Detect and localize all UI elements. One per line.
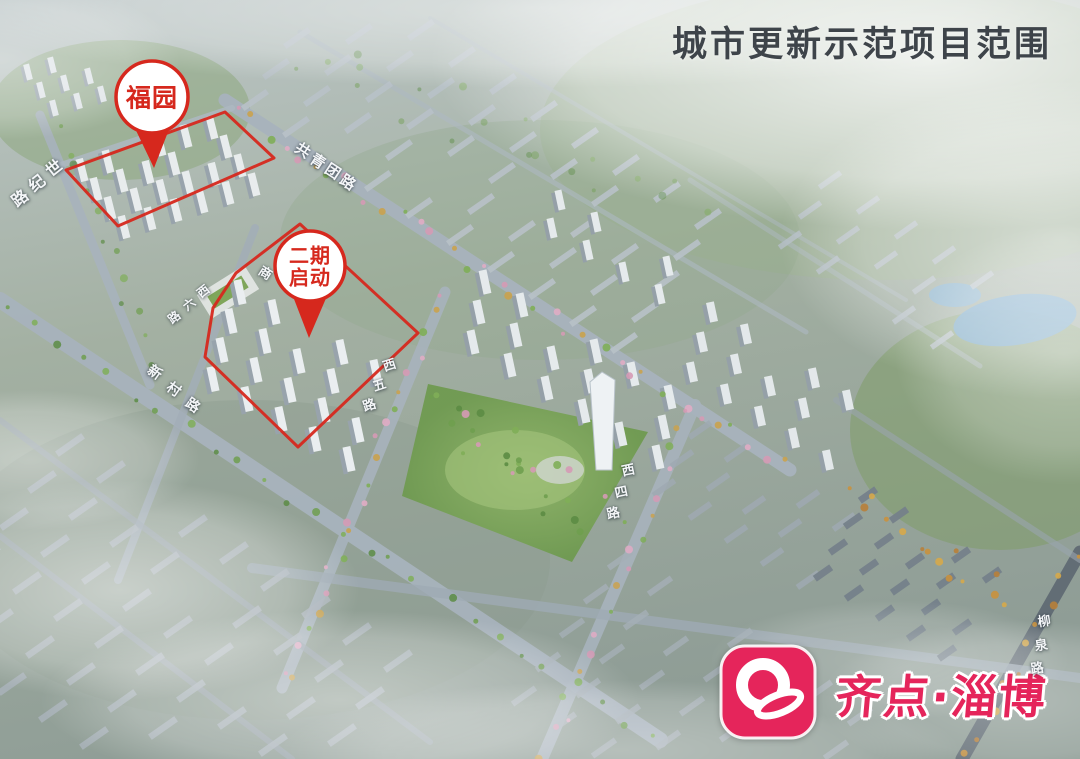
logo-text: 齐点·淄博 [833, 657, 1051, 727]
page-title: 城市更新示范项目范围 [672, 16, 1052, 67]
marker-label-fuyuan: 福园 [126, 85, 178, 112]
q-logo-icon [716, 642, 820, 742]
marker-label-line: 启动 [289, 267, 331, 289]
road-label-char: 柳 [1036, 610, 1052, 631]
marker-fuyuan [116, 61, 188, 168]
marker-label-phase2-launch: 二期启动 [289, 245, 331, 288]
project-scope-rendering: 城市更新示范项目范围 齐点·淄博 福园二期启动世纪路共青团路商西六路新村路西五路… [0, 0, 1080, 759]
marker-label-line: 二期 [289, 245, 331, 267]
marker-label-line: 福园 [126, 85, 178, 112]
road-label-char: 路 [1029, 657, 1045, 678]
road-label-char: 泉 [1033, 633, 1049, 654]
qidian-zibo-logo: 齐点·淄博 [716, 642, 1047, 742]
